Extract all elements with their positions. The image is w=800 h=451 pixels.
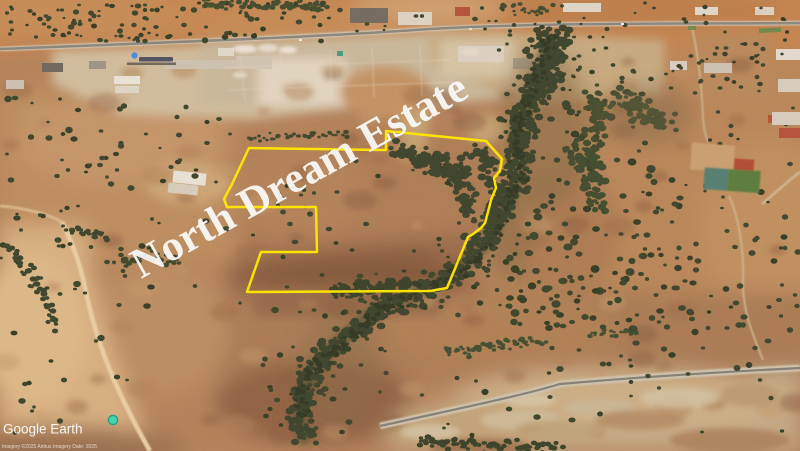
svg-text:Google Earth: Google Earth	[3, 422, 83, 437]
svg-text:Imagery ©2025 Airbus Imagery: Imagery ©2025 Airbus Imagery Date: 2025	[2, 443, 97, 450]
